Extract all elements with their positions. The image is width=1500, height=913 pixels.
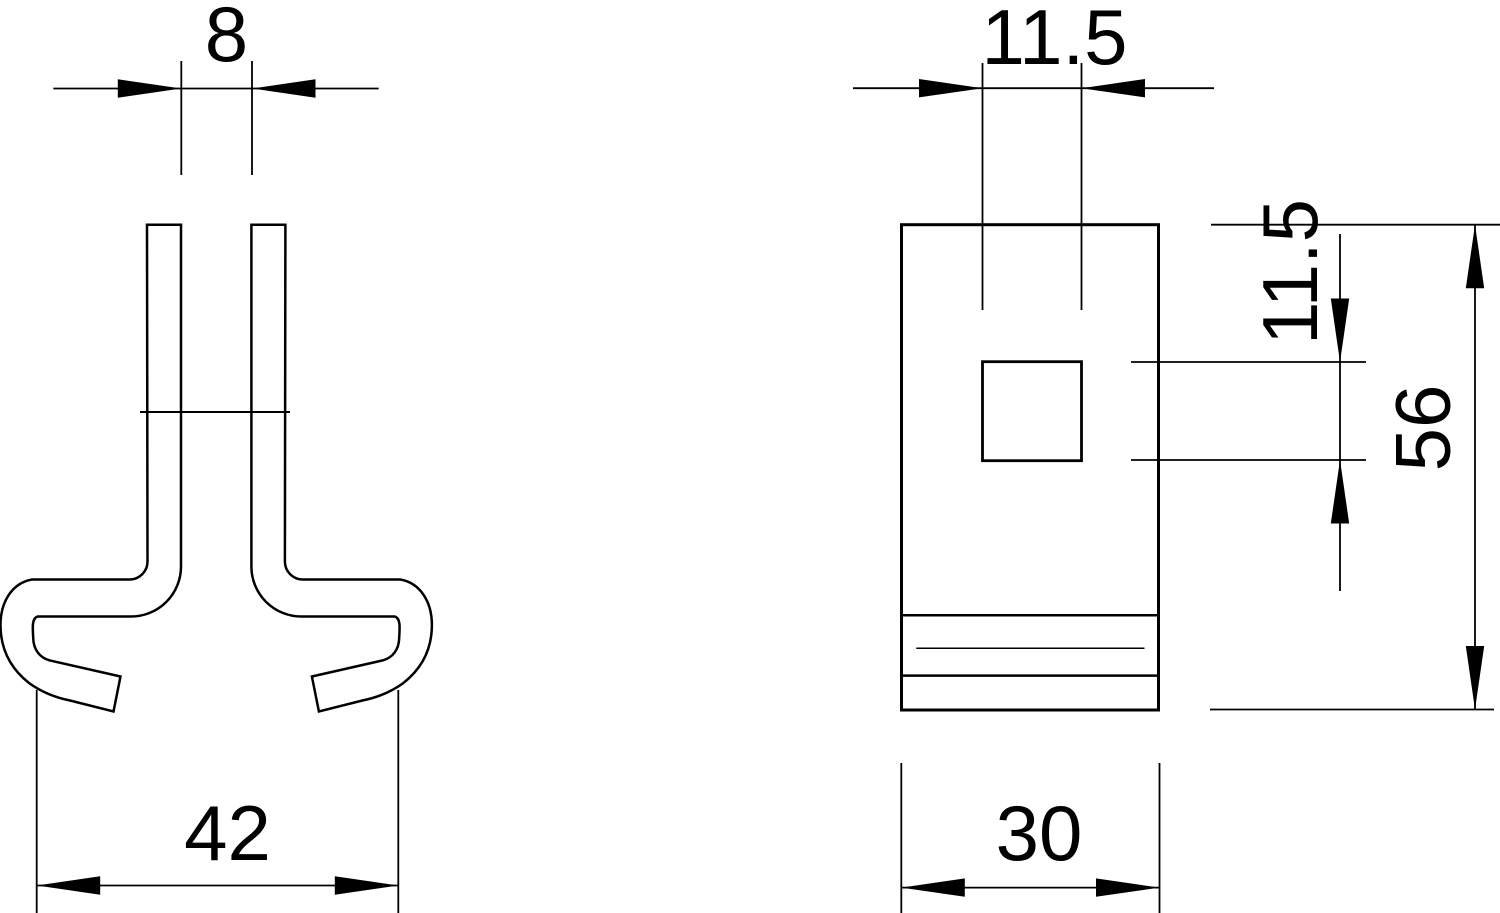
svg-text:30: 30	[996, 789, 1083, 877]
svg-text:42: 42	[184, 789, 271, 877]
svg-text:8: 8	[205, 0, 248, 78]
svg-text:11.5: 11.5	[981, 0, 1127, 81]
svg-text:56: 56	[1379, 385, 1467, 472]
svg-text:11.5: 11.5	[1246, 199, 1334, 345]
